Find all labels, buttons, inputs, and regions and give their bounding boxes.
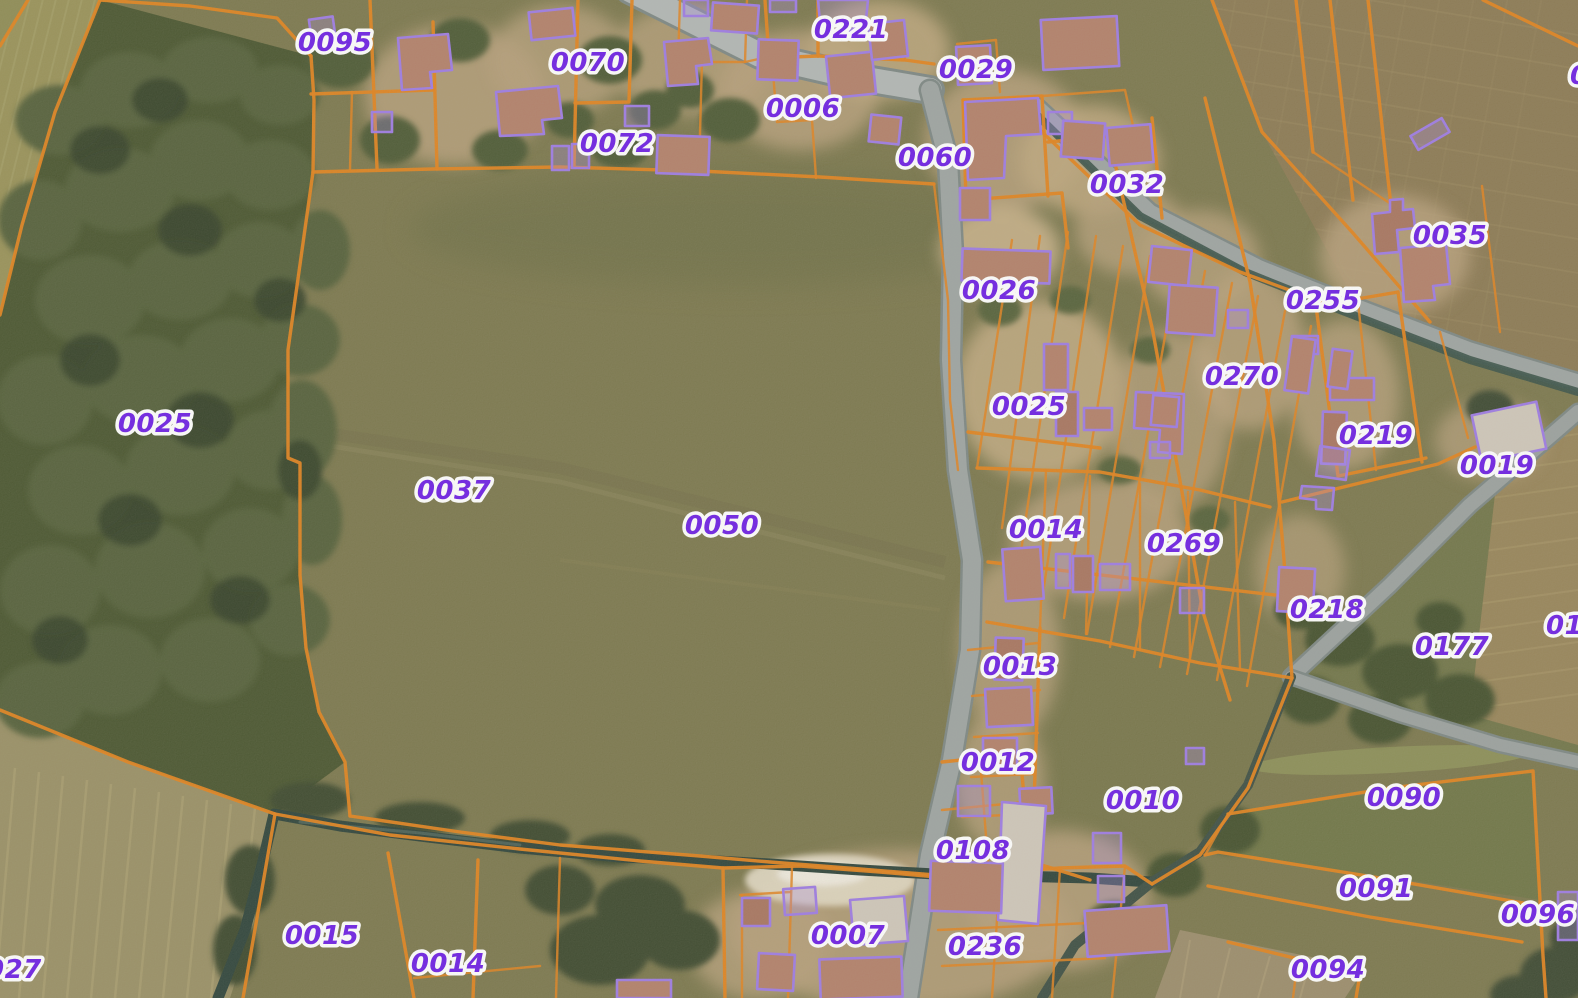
parcel-label: 0270 [1205,362,1279,392]
parcel-label: 0032 [1090,170,1164,200]
parcel-label: 0035 [1413,221,1487,251]
parcel-label: 0221 [814,15,888,45]
parcel-label: 0037 [417,476,492,506]
parcel-label: 0050 [685,511,759,541]
parcel-label: 0 [1570,61,1578,91]
parcel-label: 0006 [766,94,840,124]
parcel-label: 0091 [1339,874,1413,904]
parcel-label: 0007 [811,921,886,951]
parcel-label: 01 [1546,611,1578,641]
parcel-label: 0072 [580,129,654,159]
parcel-label: 0219 [1339,421,1413,451]
parcel-label: 0060 [898,143,972,173]
parcel-label: 0025 [118,409,192,439]
cadastral-map-canvas[interactable]: 0095007002210029000600720060003200350026… [0,0,1578,998]
parcel-label: 0269 [1147,529,1221,559]
parcel-label: 0090 [1367,783,1441,813]
map-viewport[interactable]: 0095007002210029000600720060003200350026… [0,0,1578,998]
parcel-label: 0108 [936,836,1010,866]
parcel-label: 0070 [551,48,625,78]
parcel-label: 0236 [948,932,1022,962]
parcel-label: 0026 [962,276,1036,306]
parcel-label: 0012 [961,748,1035,778]
parcel-label: 0095 [298,28,372,58]
parcel-label: 0029 [939,55,1013,85]
parcel-label: 0014 [411,949,485,979]
parcel-label: 0255 [1286,286,1360,316]
parcel-label: 0218 [1290,595,1364,625]
parcel-label: 0010 [1106,786,1180,816]
parcel-label: 0096 [1501,900,1575,930]
parcel-label: 0094 [1291,955,1365,985]
parcel-label: 0025 [992,392,1066,422]
parcel-label: 0014 [1009,515,1083,545]
parcel-label: 0015 [285,921,359,951]
parcel-label: 0013 [983,652,1057,682]
parcel-label: 027 [0,955,42,985]
parcel-label: 0019 [1460,451,1534,481]
parcel-label: 0177 [1415,632,1490,662]
